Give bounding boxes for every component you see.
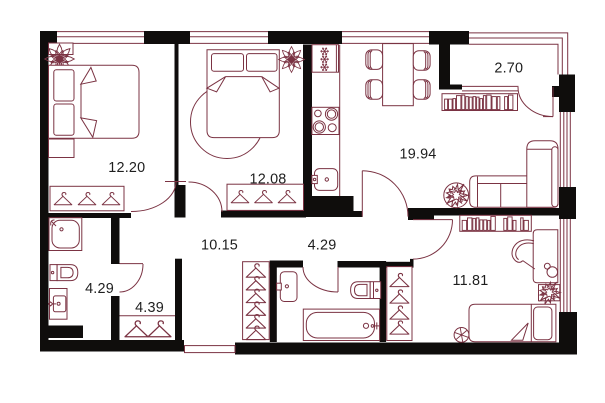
- svg-text:12.08: 12.08: [249, 171, 286, 187]
- svg-text:11.81: 11.81: [453, 273, 489, 289]
- svg-text:2.70: 2.70: [494, 61, 523, 77]
- svg-text:4.29: 4.29: [85, 281, 114, 297]
- svg-text:12.20: 12.20: [108, 160, 145, 176]
- svg-text:4.39: 4.39: [135, 300, 164, 316]
- svg-text:19.94: 19.94: [399, 147, 436, 163]
- svg-text:10.15: 10.15: [201, 237, 238, 253]
- svg-text:4.29: 4.29: [308, 237, 337, 253]
